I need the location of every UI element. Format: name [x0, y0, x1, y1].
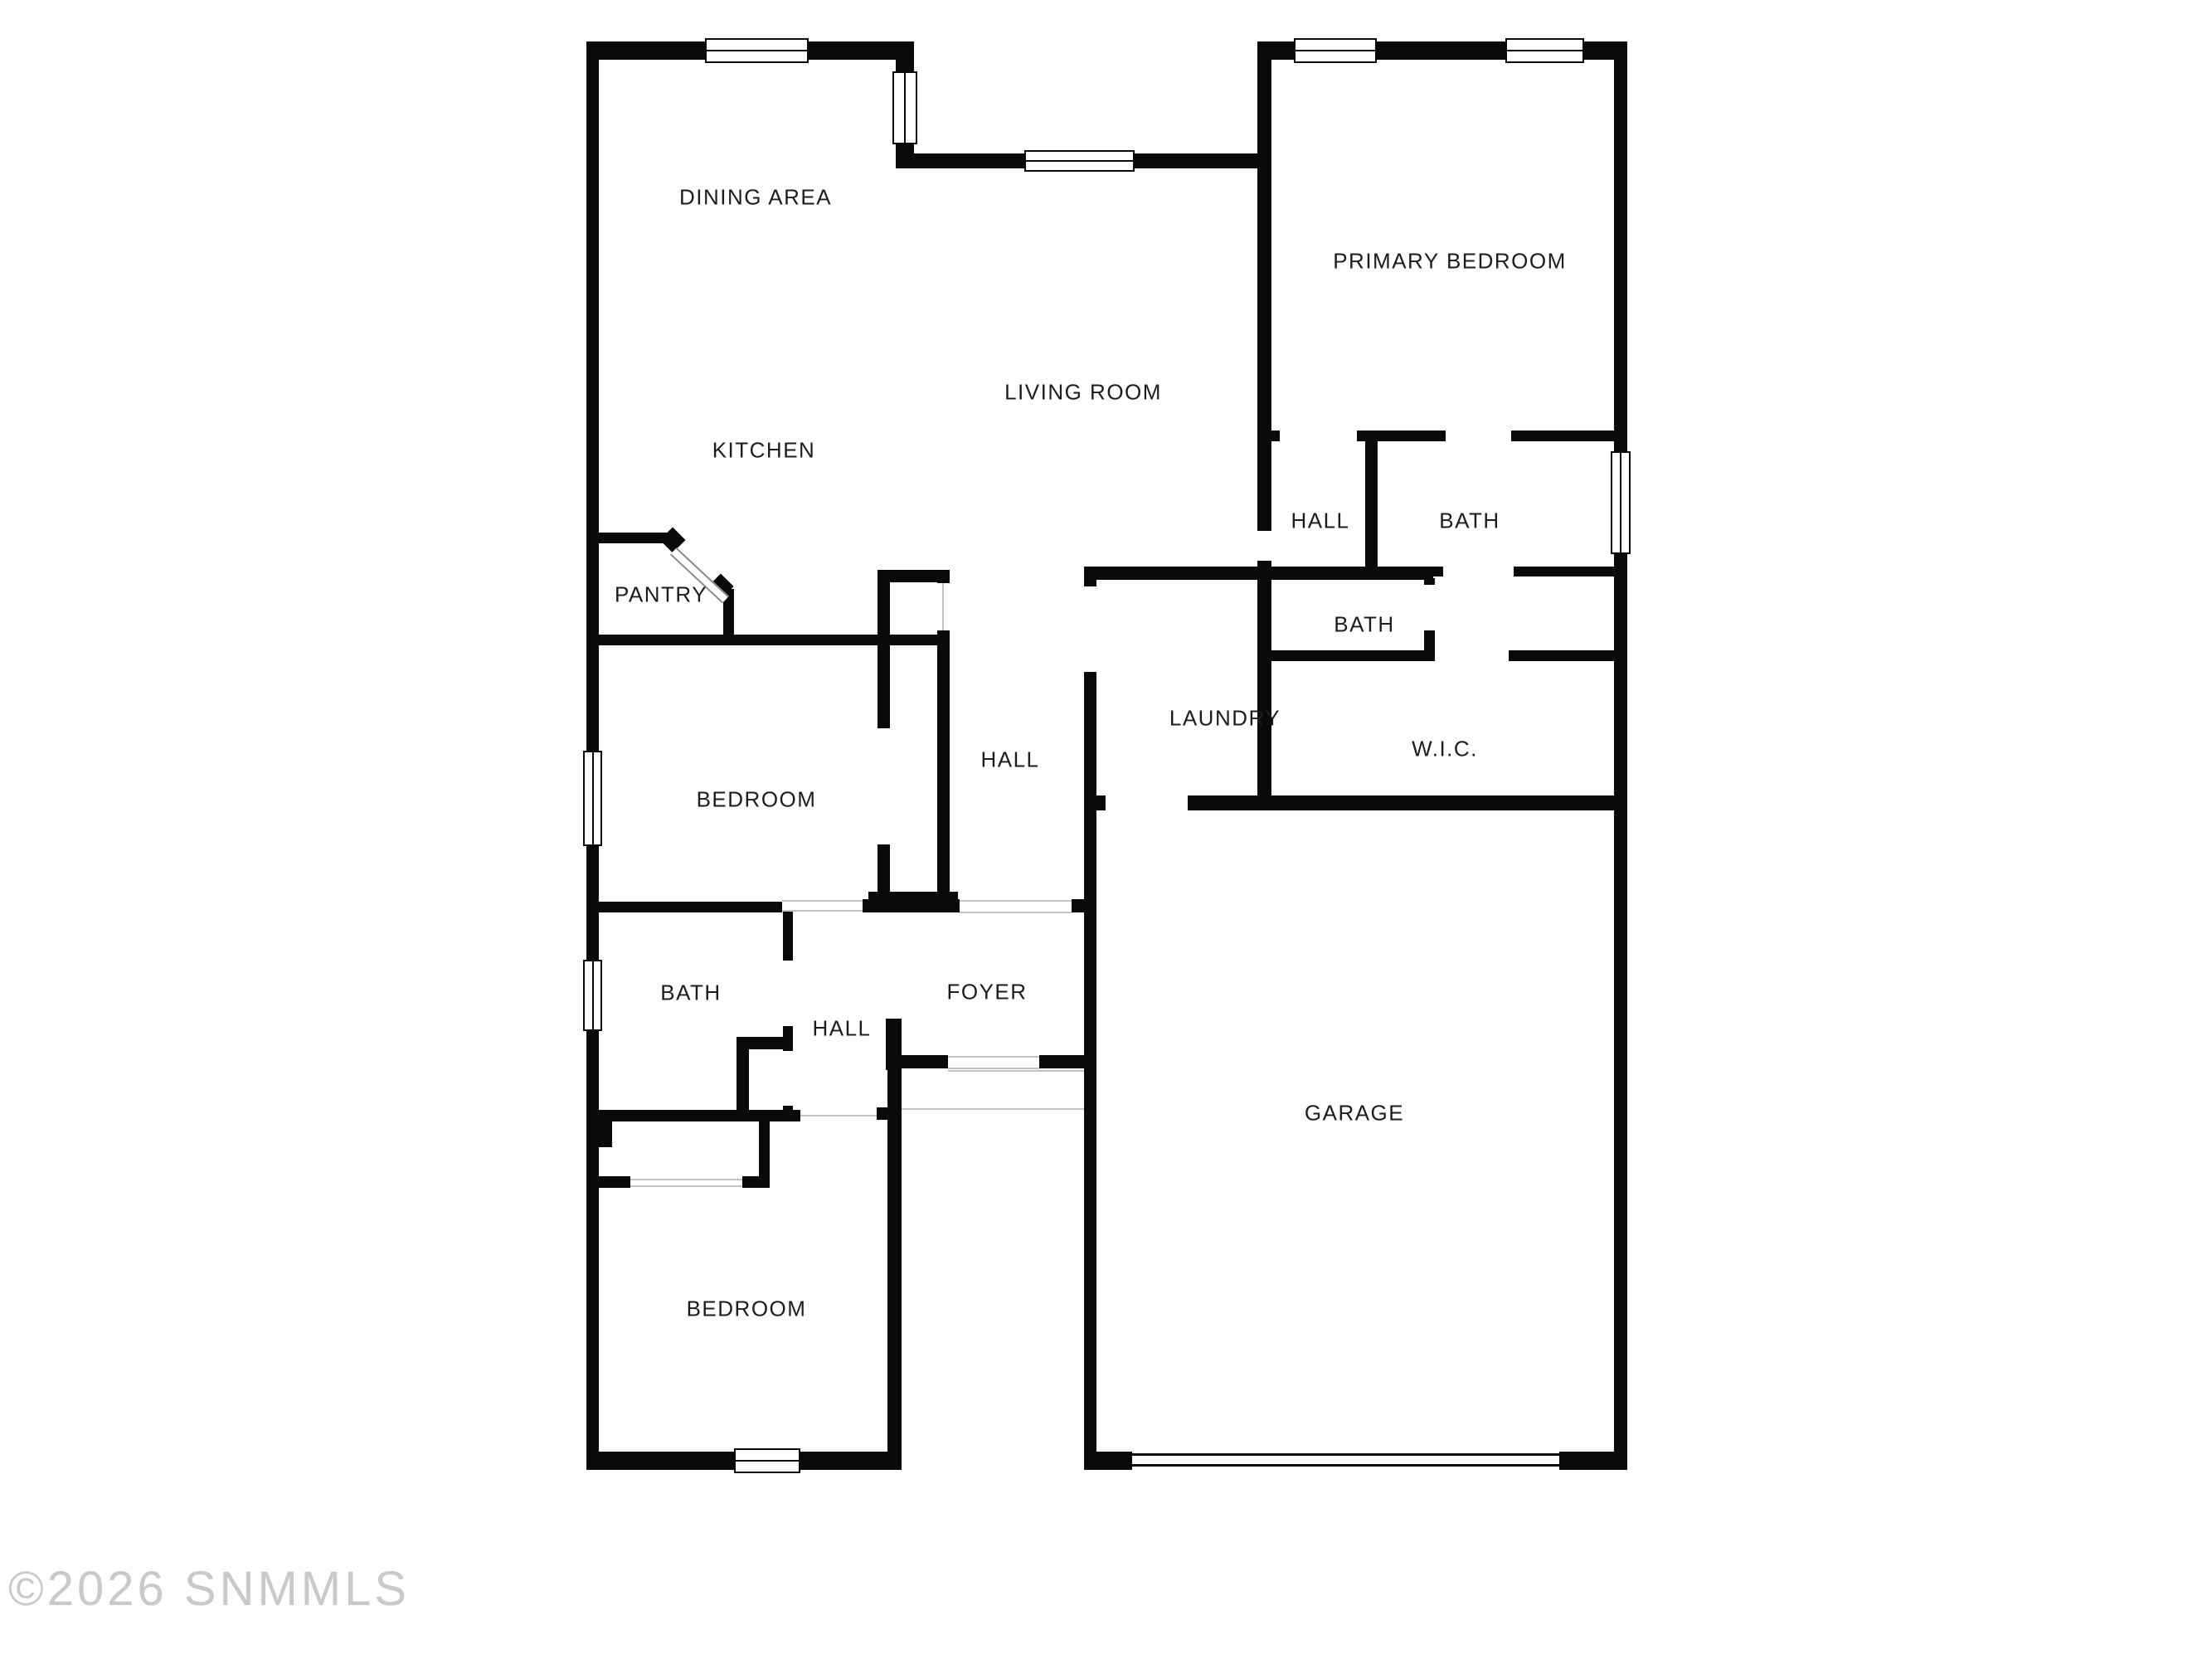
wall: [737, 1049, 749, 1117]
wall: [599, 1176, 630, 1188]
window: [1505, 38, 1584, 63]
wall: [878, 844, 890, 894]
wall: [1514, 567, 1614, 577]
door-threshold-line: [960, 912, 1072, 913]
wall: [599, 1121, 612, 1147]
door-threshold-line: [948, 1068, 1039, 1069]
wall: [586, 1110, 800, 1121]
door-threshold-line: [630, 1185, 742, 1187]
door-threshold-line: [902, 1108, 1084, 1110]
window: [1024, 150, 1135, 172]
wall: [1424, 578, 1435, 585]
room-label-bath-top: BATH: [1439, 508, 1500, 534]
wall: [759, 1121, 770, 1178]
wall: [742, 1176, 770, 1188]
wall: [877, 1107, 902, 1120]
door-threshold-line: [800, 1115, 877, 1117]
wall: [887, 1070, 902, 1470]
room-label-kitchen: KITCHEN: [712, 438, 816, 464]
wall: [586, 635, 950, 645]
door-threshold-line: [948, 1056, 1039, 1058]
window: [1294, 38, 1377, 63]
wall: [1509, 650, 1614, 661]
wall: [937, 570, 950, 583]
wall: [1365, 441, 1378, 567]
window: [583, 751, 602, 846]
room-label-hall-bottom: HALL: [812, 1016, 871, 1042]
room-label-bedroom-bottom: BEDROOM: [687, 1297, 807, 1322]
door-threshold-line: [782, 900, 863, 902]
wall: [737, 1037, 793, 1049]
pantry-wall-corner: [659, 527, 685, 552]
door-threshold-line: [942, 583, 944, 630]
watermark: ©2026 SNMMLS: [8, 1561, 410, 1617]
wall: [1511, 431, 1627, 441]
room-label-hall-top: HALL: [1291, 508, 1349, 534]
window: [892, 71, 917, 144]
wall: [1257, 441, 1271, 531]
door-threshold-line: [630, 1179, 742, 1180]
wall: [783, 911, 793, 961]
room-label-bath-mid: BATH: [1334, 612, 1394, 638]
floor-plan: DINING AREAPRIMARY BEDROOMLIVING ROOMKIT…: [0, 0, 2212, 1659]
room-label-garage: GARAGE: [1305, 1101, 1404, 1126]
room-label-primary-bedroom: PRIMARY BEDROOM: [1333, 249, 1567, 275]
room-label-living-room: LIVING ROOM: [1004, 380, 1162, 406]
wall: [599, 902, 782, 912]
wall: [1559, 1452, 1627, 1470]
wall: [1084, 672, 1096, 1470]
room-label-hall-mid: HALL: [980, 747, 1039, 773]
wall: [1188, 795, 1627, 810]
window: [705, 38, 809, 63]
wall: [1084, 795, 1106, 810]
wall: [1084, 567, 1433, 580]
room-label-dining-area: DINING AREA: [679, 185, 832, 211]
door-threshold-line: [948, 1070, 1084, 1072]
wall: [1257, 561, 1271, 795]
room-label-laundry: LAUNDRY: [1169, 706, 1281, 732]
door-threshold-line: [782, 910, 863, 912]
room-label-bath-bottom: BATH: [660, 980, 721, 1006]
wall: [902, 1055, 948, 1068]
wall: [1257, 650, 1435, 661]
wall: [1357, 431, 1446, 441]
wall: [863, 899, 960, 912]
wall: [878, 645, 890, 728]
wall: [937, 630, 950, 892]
wall: [1039, 1055, 1084, 1068]
room-label-bedroom-mid: BEDROOM: [697, 787, 817, 813]
window: [583, 960, 602, 1031]
wall: [1072, 899, 1084, 912]
garage-door: [1132, 1453, 1559, 1467]
room-label-pantry: PANTRY: [615, 582, 707, 608]
wall: [886, 1019, 902, 1070]
wall: [1614, 41, 1627, 1470]
wall: [1257, 60, 1271, 431]
wall: [1257, 431, 1280, 441]
room-label-foyer: FOYER: [946, 980, 1027, 1005]
window: [1611, 451, 1631, 554]
wall: [878, 582, 890, 645]
door-threshold-line: [960, 900, 1072, 902]
window: [734, 1448, 800, 1473]
room-label-wic: W.I.C.: [1412, 737, 1478, 762]
